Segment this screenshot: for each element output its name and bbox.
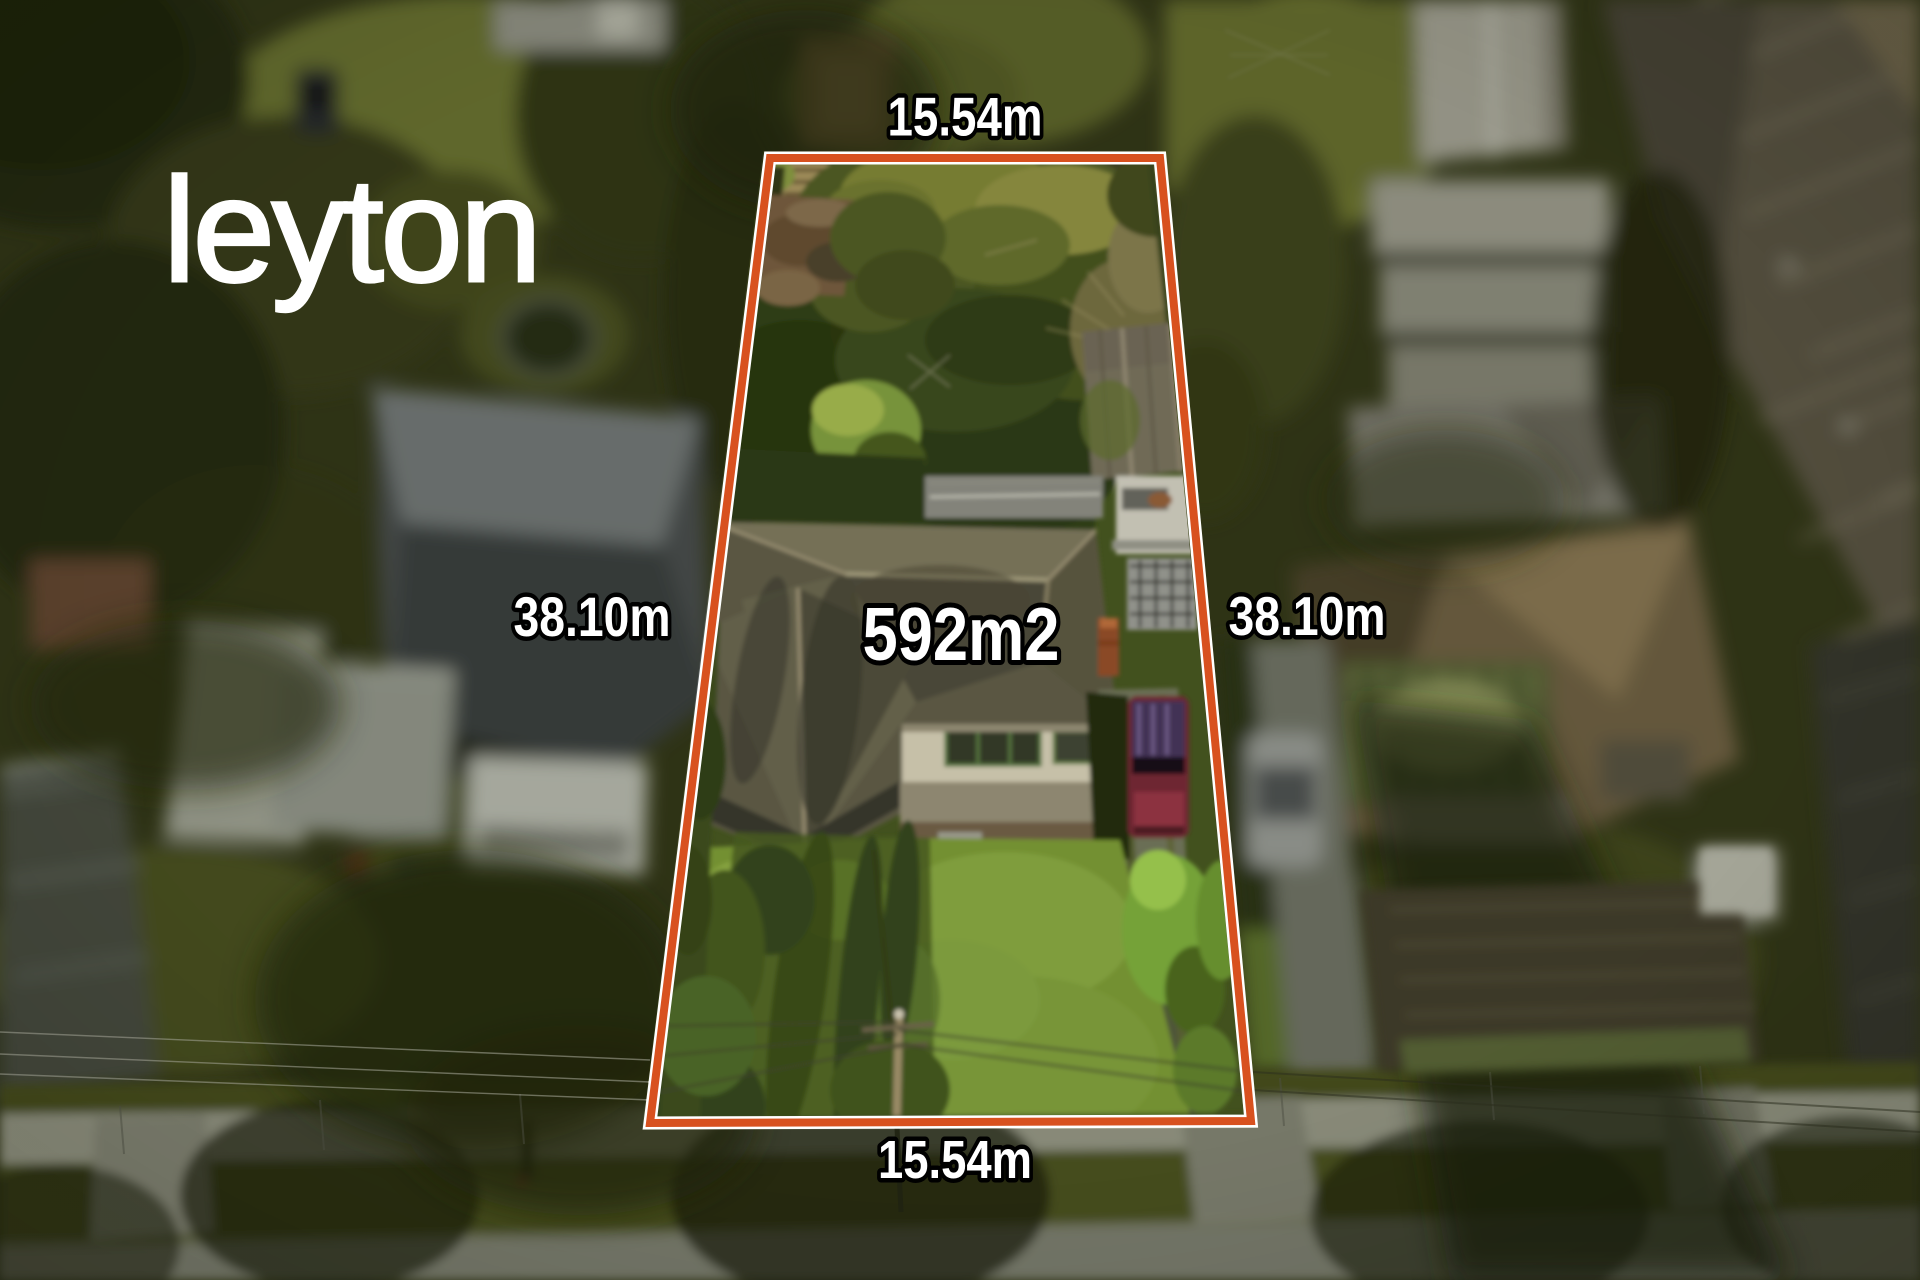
svg-text:15.54m: 15.54m [888, 87, 1043, 148]
svg-text:592m2: 592m2 [863, 592, 1060, 676]
svg-text:15.54m: 15.54m [878, 1130, 1032, 1190]
svg-text:leyton: leyton [163, 148, 539, 313]
svg-text:38.10m: 38.10m [1229, 585, 1386, 647]
svg-text:38.10m: 38.10m [514, 585, 671, 648]
